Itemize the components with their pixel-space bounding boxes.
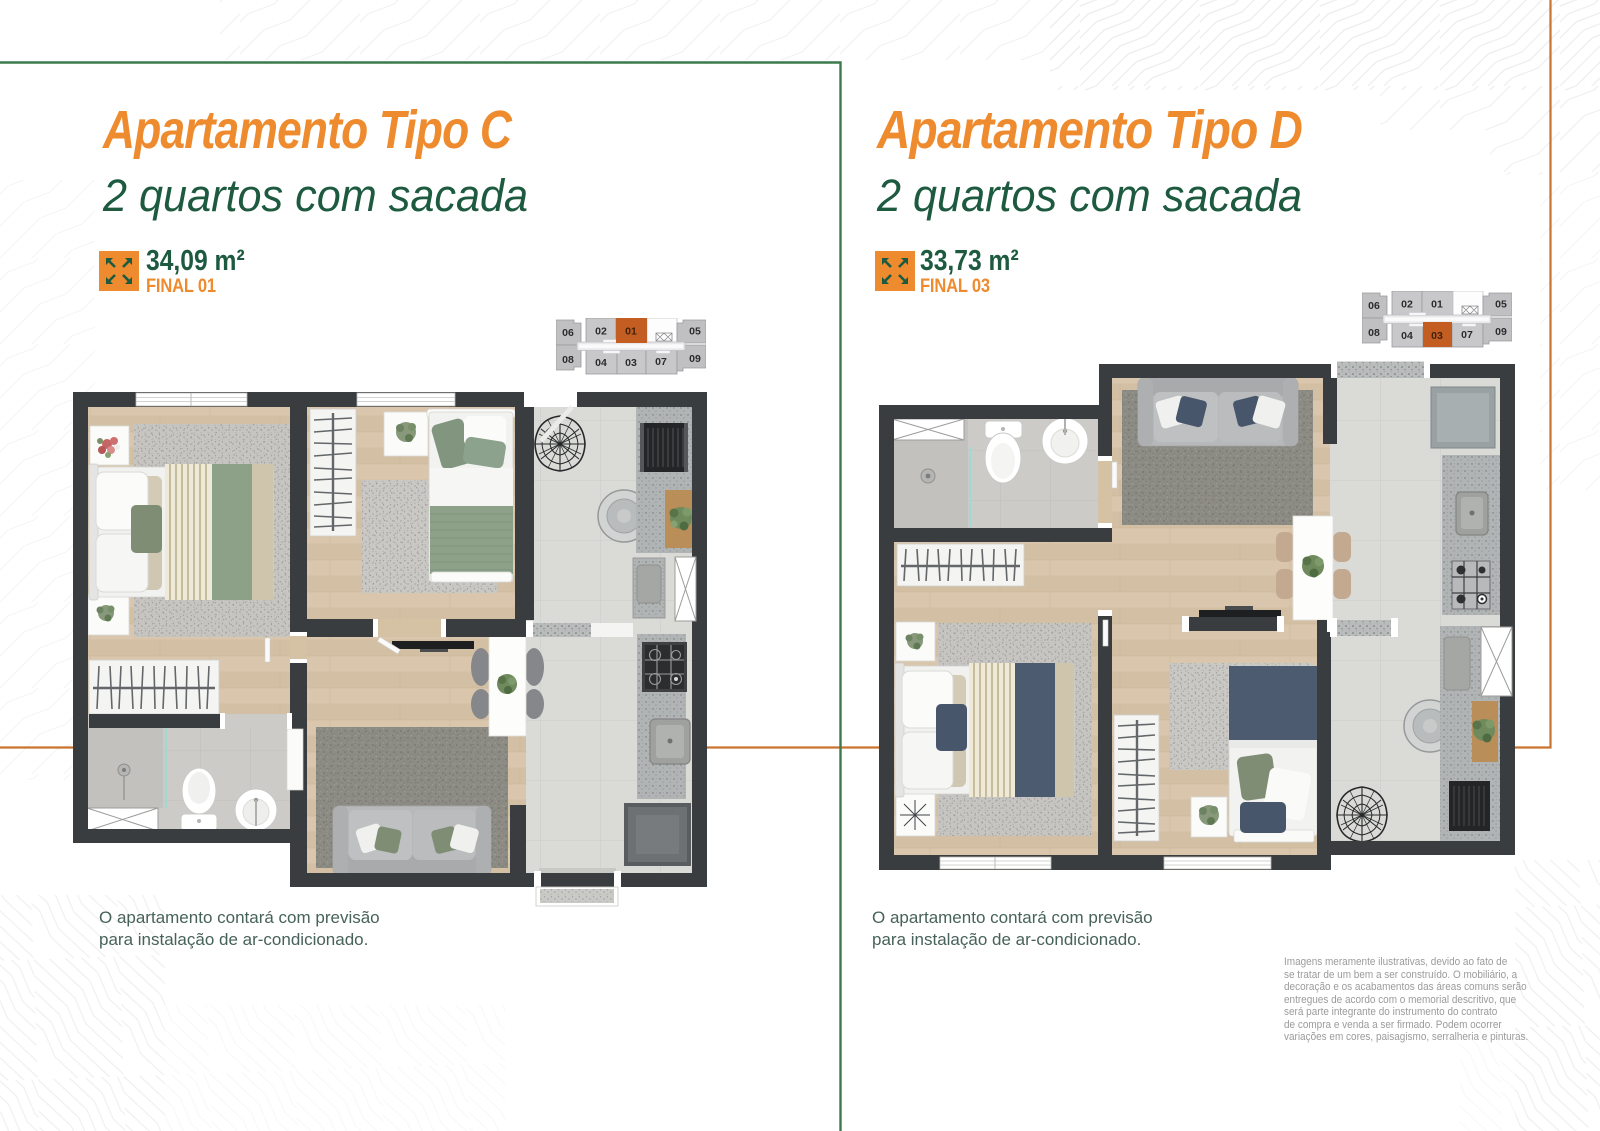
svg-text:03: 03	[625, 357, 637, 369]
svg-text:01: 01	[1431, 299, 1443, 311]
svg-text:07: 07	[1461, 329, 1473, 341]
svg-text:09: 09	[689, 353, 701, 365]
svg-text:06: 06	[1368, 300, 1380, 312]
svg-text:03: 03	[1431, 330, 1443, 342]
svg-text:05: 05	[1495, 299, 1507, 311]
svg-text:08: 08	[562, 354, 574, 366]
svg-text:04: 04	[595, 357, 607, 369]
svg-text:09: 09	[1495, 326, 1507, 338]
svg-text:02: 02	[595, 326, 607, 338]
svg-text:05: 05	[689, 326, 701, 338]
svg-text:02: 02	[1401, 299, 1413, 311]
svg-text:08: 08	[1368, 327, 1380, 339]
svg-text:07: 07	[655, 356, 667, 368]
svg-text:01: 01	[625, 326, 637, 338]
svg-text:04: 04	[1401, 330, 1413, 342]
svg-text:06: 06	[562, 327, 574, 339]
